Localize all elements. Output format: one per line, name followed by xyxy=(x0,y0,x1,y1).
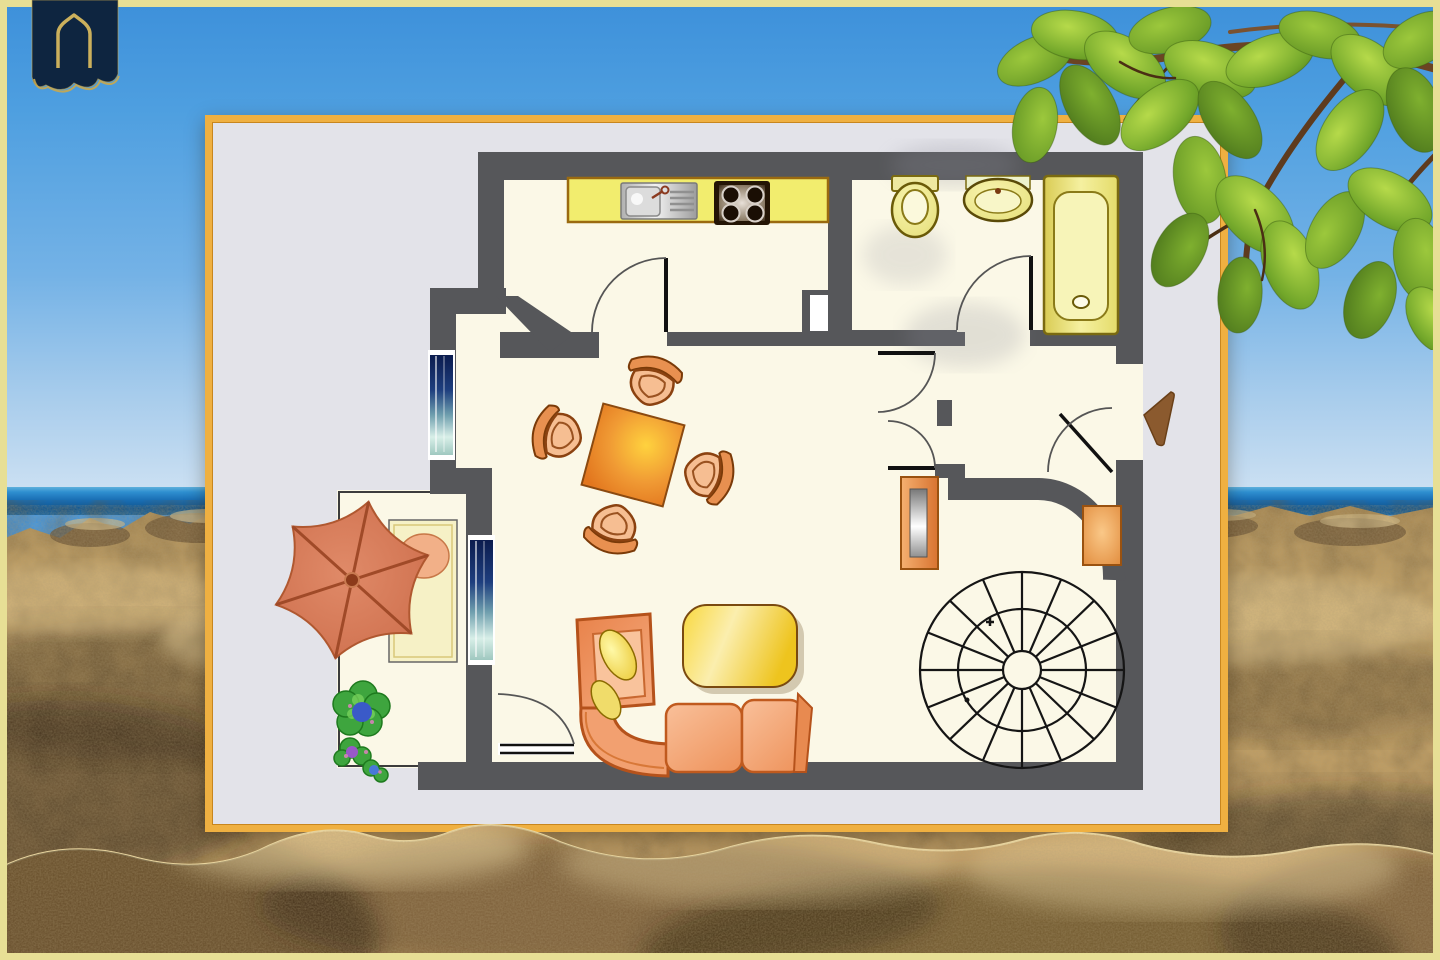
wall-hall-south xyxy=(948,478,1040,500)
entrance-arrow-icon xyxy=(1144,392,1174,446)
leaf-cluster xyxy=(989,0,1440,350)
toilet xyxy=(892,176,938,237)
sofa-cushion xyxy=(742,700,802,772)
kitchen-sink xyxy=(621,183,697,219)
brand-logo xyxy=(22,0,132,108)
logo-banner xyxy=(32,0,118,90)
coffee-table xyxy=(683,605,804,694)
sofa-cushion xyxy=(666,704,742,772)
window-living-2 xyxy=(468,535,495,665)
leaf xyxy=(1215,255,1265,335)
window-living-1 xyxy=(428,350,455,460)
spiral-staircase xyxy=(920,572,1124,768)
tree-branches xyxy=(980,0,1440,350)
stove xyxy=(714,181,770,225)
wall-niche xyxy=(810,295,828,331)
wardrobe-mirror xyxy=(901,477,938,569)
kitchen xyxy=(568,178,828,225)
kitchen-counter xyxy=(568,178,828,222)
beach-scene xyxy=(0,0,1440,960)
dune-shading xyxy=(0,800,1440,960)
hall-cabinet xyxy=(1083,506,1121,565)
leaf xyxy=(1007,84,1064,166)
sand-foreground xyxy=(0,800,1440,960)
